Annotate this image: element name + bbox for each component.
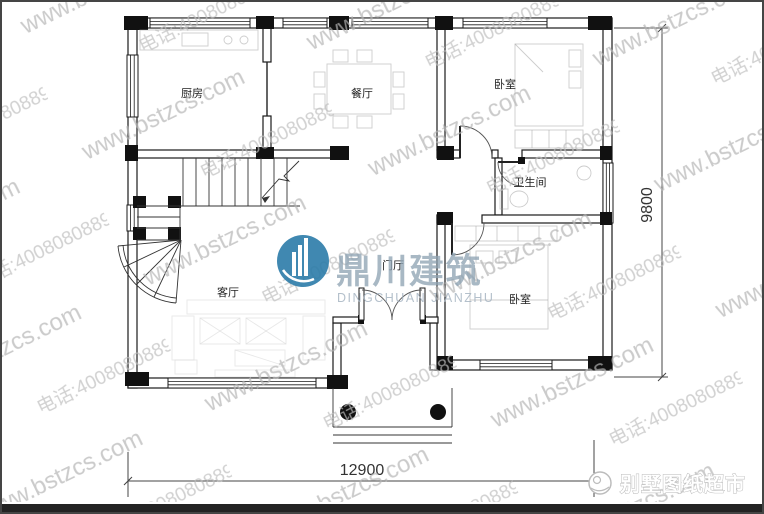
brand-circle-icon <box>277 235 329 287</box>
corner-brand-text: 别墅图纸超市 <box>619 472 746 496</box>
brand-name-en: DINGCHUAN JIANZHU <box>337 291 494 305</box>
floor-plan-image: www.bstzcs.com 电话:4008080889 <box>0 0 764 514</box>
bottom-bar <box>0 504 764 514</box>
floor-plan-page: www.bstzcs.com 电话:4008080889 <box>0 0 764 514</box>
brand-name-cn: 鼎川建筑 <box>336 252 482 291</box>
